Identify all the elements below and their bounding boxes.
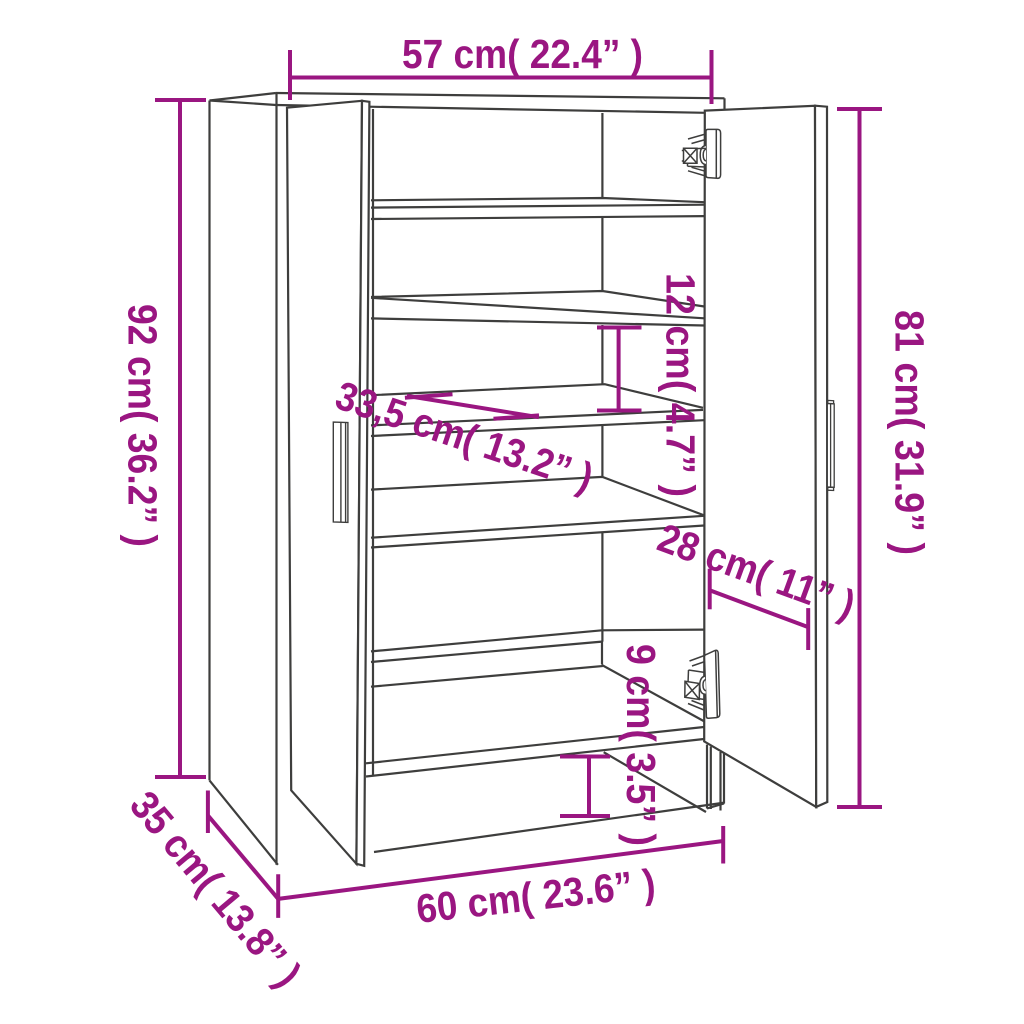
svg-text:81 cm( 31.9” ): 81 cm( 31.9” )	[887, 310, 933, 555]
svg-text:9 cm( 3.5” ): 9 cm( 3.5” )	[618, 644, 664, 846]
svg-text:92 cm( 36.2” ): 92 cm( 36.2” )	[120, 304, 166, 547]
svg-text:57 cm( 22.4” ): 57 cm( 22.4” )	[402, 31, 643, 77]
svg-text:12 cm( 4.7” ): 12 cm( 4.7” )	[658, 273, 704, 497]
